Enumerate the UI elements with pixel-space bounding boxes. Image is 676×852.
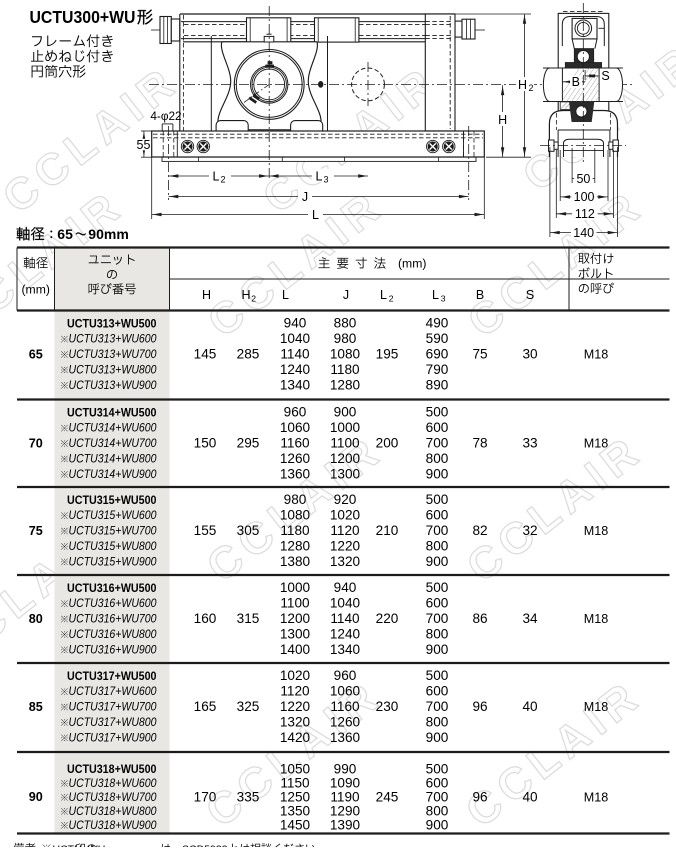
svg-text:990: 990 (334, 761, 357, 776)
svg-text:40: 40 (522, 789, 538, 804)
svg-text:UCTU315+WU700: UCTU315+WU700 (69, 524, 157, 538)
svg-text:50: 50 (576, 172, 590, 186)
svg-text:1320: 1320 (330, 554, 361, 569)
svg-text:600: 600 (426, 596, 449, 611)
svg-text:UCTU314+WU900: UCTU314+WU900 (69, 467, 157, 481)
svg-text:65: 65 (57, 226, 73, 242)
svg-text:700: 700 (426, 523, 449, 538)
svg-text:UCTU318+WU900: UCTU318+WU900 (69, 818, 157, 832)
svg-text:L: L (213, 169, 220, 183)
svg-text:490: 490 (426, 316, 449, 331)
svg-text:L: L (282, 288, 289, 302)
svg-text:1350: 1350 (280, 803, 311, 818)
svg-text:1340: 1340 (330, 642, 361, 657)
svg-text:UCTU317+WU600: UCTU317+WU600 (69, 684, 157, 698)
svg-text:285: 285 (237, 347, 260, 362)
svg-text:1450: 1450 (280, 817, 311, 832)
svg-text:100: 100 (574, 190, 595, 204)
svg-text:L: L (380, 288, 387, 302)
svg-text:1100: 1100 (280, 596, 310, 611)
svg-text:940: 940 (284, 316, 307, 331)
svg-text:1140: 1140 (280, 347, 310, 362)
svg-text:2: 2 (221, 175, 226, 185)
svg-text:3: 3 (441, 293, 446, 303)
svg-text:H: H (498, 113, 507, 127)
svg-text:34: 34 (522, 611, 538, 626)
svg-text:1000: 1000 (280, 580, 311, 595)
svg-text:1250: 1250 (280, 789, 311, 804)
svg-text:UCTU316+WU800: UCTU316+WU800 (69, 627, 157, 641)
svg-text:UCTU318+WU700: UCTU318+WU700 (69, 790, 157, 804)
svg-text:M18: M18 (584, 348, 609, 362)
svg-text:UCTU+WU: UCTU+WU (53, 844, 106, 848)
svg-text:800: 800 (426, 803, 449, 818)
svg-text:600: 600 (426, 420, 449, 435)
svg-text:165: 165 (194, 699, 217, 714)
svg-text:M18: M18 (584, 437, 609, 451)
svg-text:1160: 1160 (280, 436, 310, 451)
svg-text:1390: 1390 (330, 817, 361, 832)
svg-text:86: 86 (472, 611, 487, 626)
svg-text:245: 245 (376, 789, 399, 804)
svg-text:UCTU315+WU600: UCTU315+WU600 (69, 508, 157, 522)
svg-text:1300: 1300 (280, 626, 311, 641)
svg-text:900: 900 (334, 405, 357, 420)
svg-text:1000: 1000 (330, 420, 361, 435)
svg-text:2: 2 (251, 293, 256, 303)
svg-text:1180: 1180 (330, 362, 360, 377)
svg-text:295: 295 (237, 436, 260, 451)
svg-text:UCTU315+WU900: UCTU315+WU900 (69, 554, 157, 568)
svg-text:UCTU318+WU600: UCTU318+WU600 (69, 776, 157, 790)
svg-text:55: 55 (137, 138, 151, 152)
svg-text:1360: 1360 (330, 730, 361, 745)
svg-text:82: 82 (472, 523, 487, 538)
svg-text:155: 155 (194, 523, 217, 538)
svg-text:33: 33 (522, 436, 537, 451)
svg-text:2: 2 (529, 83, 534, 93)
svg-text:1220: 1220 (330, 538, 361, 553)
svg-text:85: 85 (29, 700, 43, 714)
svg-text:4-φ22: 4-φ22 (150, 109, 181, 123)
svg-text:590: 590 (426, 331, 449, 346)
svg-text:L: L (432, 288, 439, 302)
svg-text:1260: 1260 (330, 714, 361, 729)
svg-text:J: J (302, 190, 308, 204)
svg-text:UCTU313+WU900: UCTU313+WU900 (69, 378, 157, 392)
svg-text:UCTU314+WU600: UCTU314+WU600 (69, 421, 157, 435)
svg-text:70: 70 (29, 436, 43, 450)
svg-text:90: 90 (29, 790, 43, 804)
svg-text:1280: 1280 (280, 538, 311, 553)
svg-text:M18: M18 (584, 700, 609, 714)
svg-text:700: 700 (426, 436, 449, 451)
svg-text:(mm): (mm) (398, 257, 426, 271)
svg-text:1040: 1040 (280, 331, 311, 346)
svg-text:1080: 1080 (280, 508, 311, 523)
svg-text:1420: 1420 (280, 730, 311, 745)
svg-text:1180: 1180 (280, 523, 310, 538)
svg-text:UCTU313+WU700: UCTU313+WU700 (69, 347, 157, 361)
svg-text:1080: 1080 (330, 347, 361, 362)
svg-text:1200: 1200 (330, 451, 361, 466)
svg-text:900: 900 (426, 466, 449, 481)
svg-text:M18: M18 (584, 612, 609, 626)
svg-text:200: 200 (376, 436, 399, 451)
svg-text:78: 78 (472, 436, 487, 451)
svg-text:B: B (572, 75, 580, 89)
svg-text:920: 920 (334, 492, 357, 507)
svg-text:UCTU317+WU900: UCTU317+WU900 (69, 730, 157, 744)
svg-text:UCTU300+WU: UCTU300+WU (30, 7, 136, 27)
svg-text:M18: M18 (584, 790, 609, 804)
svg-text:700: 700 (426, 699, 449, 714)
svg-text:325: 325 (237, 699, 260, 714)
svg-text:230: 230 (376, 699, 399, 714)
svg-text:1300: 1300 (330, 466, 361, 481)
svg-text:880: 880 (334, 316, 357, 331)
svg-text:305: 305 (237, 523, 260, 538)
svg-text:150: 150 (194, 436, 217, 451)
svg-text:75: 75 (472, 347, 487, 362)
svg-text:H: H (518, 78, 527, 92)
svg-text:900: 900 (426, 730, 449, 745)
svg-text:500: 500 (426, 761, 449, 776)
svg-text:UCTU318+WU500: UCTU318+WU500 (67, 762, 157, 776)
svg-text:B: B (476, 288, 484, 302)
svg-text:30: 30 (522, 347, 538, 362)
svg-text:1340: 1340 (280, 377, 311, 392)
svg-text:UCTU315+WU800: UCTU315+WU800 (69, 539, 157, 553)
svg-text:1320: 1320 (280, 714, 311, 729)
svg-text:700: 700 (426, 789, 449, 804)
svg-text:800: 800 (426, 714, 449, 729)
svg-text:(mm): (mm) (21, 283, 49, 297)
svg-text:UCTU316+WU500: UCTU316+WU500 (67, 581, 157, 595)
svg-text:1140: 1140 (330, 611, 360, 626)
svg-text:UCTU316+WU700: UCTU316+WU700 (69, 612, 157, 626)
svg-text:170: 170 (194, 789, 217, 804)
svg-text:S: S (526, 288, 534, 302)
svg-text:700: 700 (426, 611, 449, 626)
svg-text:1090: 1090 (330, 775, 361, 790)
svg-text:80: 80 (29, 612, 43, 626)
svg-text:800: 800 (426, 626, 449, 641)
svg-text:790: 790 (426, 362, 449, 377)
svg-text:1120: 1120 (330, 523, 360, 538)
svg-text:1200: 1200 (280, 611, 311, 626)
svg-text:140: 140 (573, 226, 594, 240)
svg-text:SCD5933: SCD5933 (182, 844, 228, 848)
svg-text:315: 315 (237, 611, 260, 626)
svg-text:1020: 1020 (280, 668, 311, 683)
svg-text:145: 145 (194, 347, 217, 362)
svg-text:75: 75 (29, 524, 43, 538)
svg-text:UCTU313+WU800: UCTU313+WU800 (69, 363, 157, 377)
svg-text:500: 500 (426, 580, 449, 595)
svg-text:1190: 1190 (330, 789, 360, 804)
svg-text:1100: 1100 (330, 436, 360, 451)
svg-text:940: 940 (334, 580, 357, 595)
svg-text:112: 112 (575, 207, 595, 221)
svg-text:210: 210 (376, 523, 399, 538)
svg-text:UCTU314+WU800: UCTU314+WU800 (69, 452, 157, 466)
svg-text:2: 2 (389, 293, 394, 303)
svg-text:UCTU316+WU600: UCTU316+WU600 (69, 596, 157, 610)
svg-text:160: 160 (194, 611, 217, 626)
svg-text:3: 3 (324, 175, 329, 185)
svg-text:65: 65 (29, 347, 43, 361)
svg-text:890: 890 (426, 377, 449, 392)
svg-text:600: 600 (426, 684, 449, 699)
svg-text:690: 690 (426, 347, 449, 362)
svg-text:1400: 1400 (280, 642, 311, 657)
svg-text:UCTU316+WU900: UCTU316+WU900 (69, 642, 157, 656)
svg-text:40: 40 (522, 699, 538, 714)
svg-text:500: 500 (426, 492, 449, 507)
svg-text:900: 900 (426, 642, 449, 657)
svg-text:960: 960 (284, 405, 307, 420)
svg-text:600: 600 (426, 775, 449, 790)
svg-text:220: 220 (376, 611, 399, 626)
svg-text:900: 900 (426, 817, 449, 832)
svg-text:500: 500 (426, 405, 449, 420)
svg-text:J: J (343, 288, 349, 302)
svg-text:800: 800 (426, 451, 449, 466)
svg-text:900: 900 (426, 554, 449, 569)
svg-text:96: 96 (472, 699, 487, 714)
svg-text:500: 500 (426, 668, 449, 683)
svg-text:980: 980 (334, 331, 357, 346)
svg-text:1220: 1220 (280, 699, 311, 714)
svg-text:UCTU317+WU500: UCTU317+WU500 (67, 669, 157, 683)
svg-text:1160: 1160 (330, 699, 360, 714)
svg-text:1020: 1020 (330, 508, 361, 523)
svg-text:96: 96 (472, 789, 487, 804)
svg-text:UCTU313+WU600: UCTU313+WU600 (69, 332, 157, 346)
svg-text:L: L (312, 208, 319, 222)
svg-text:UCTU314+WU700: UCTU314+WU700 (69, 436, 157, 450)
svg-text:1240: 1240 (280, 362, 311, 377)
svg-text:800: 800 (426, 538, 449, 553)
svg-text:1040: 1040 (330, 596, 361, 611)
svg-text:32: 32 (522, 523, 537, 538)
svg-text:1050: 1050 (280, 761, 311, 776)
svg-text:1120: 1120 (280, 684, 310, 699)
svg-text:1360: 1360 (280, 466, 311, 481)
svg-text:1290: 1290 (330, 803, 361, 818)
svg-text:980: 980 (284, 492, 307, 507)
svg-text:UCTU317+WU700: UCTU317+WU700 (69, 700, 157, 714)
svg-text:960: 960 (334, 668, 357, 683)
svg-text:H: H (202, 288, 211, 302)
svg-text:UCTU318+WU800: UCTU318+WU800 (69, 804, 157, 818)
svg-text:S: S (601, 69, 609, 83)
svg-text:UCTU314+WU500: UCTU314+WU500 (67, 405, 157, 419)
svg-text:1060: 1060 (330, 684, 361, 699)
svg-text:M18: M18 (584, 524, 609, 538)
svg-text:1260: 1260 (280, 451, 311, 466)
svg-text:UCTU313+WU500: UCTU313+WU500 (67, 316, 157, 330)
svg-text:1280: 1280 (330, 377, 361, 392)
svg-text:335: 335 (237, 789, 260, 804)
svg-text:90mm: 90mm (88, 226, 128, 242)
svg-text:1240: 1240 (330, 626, 361, 641)
svg-text:UCTU315+WU500: UCTU315+WU500 (67, 493, 157, 507)
svg-text:1380: 1380 (280, 554, 311, 569)
svg-text:L: L (316, 169, 323, 183)
svg-text:600: 600 (426, 508, 449, 523)
svg-text:195: 195 (376, 347, 399, 362)
svg-text:UCTU317+WU800: UCTU317+WU800 (69, 715, 157, 729)
svg-text:1150: 1150 (280, 775, 310, 790)
svg-text:H: H (241, 288, 250, 302)
svg-text:1060: 1060 (280, 420, 311, 435)
